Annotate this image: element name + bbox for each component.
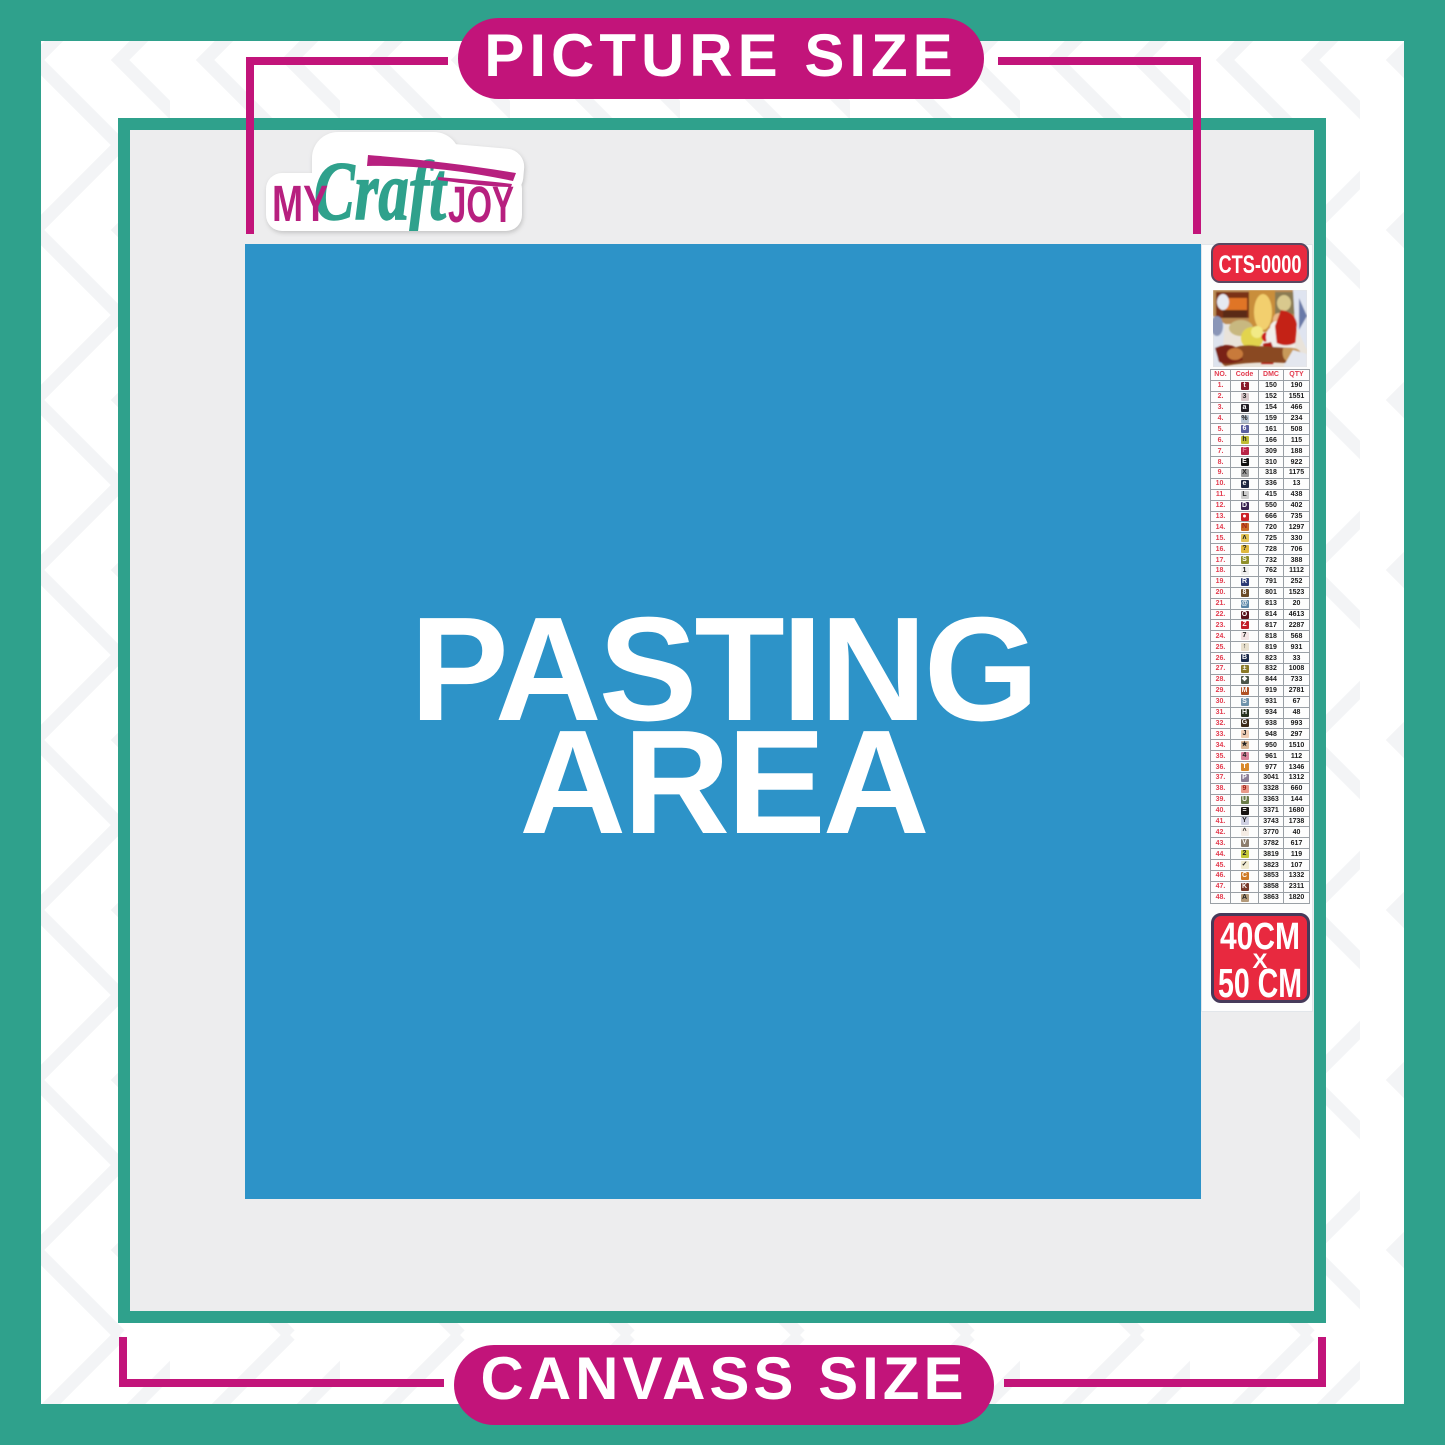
svg-text:JOY: JOY <box>448 176 514 233</box>
svg-text:MY: MY <box>272 175 328 232</box>
svg-text:CTS-0000: CTS-0000 <box>1219 251 1302 279</box>
svg-text:50 CM: 50 CM <box>1218 960 1302 1000</box>
